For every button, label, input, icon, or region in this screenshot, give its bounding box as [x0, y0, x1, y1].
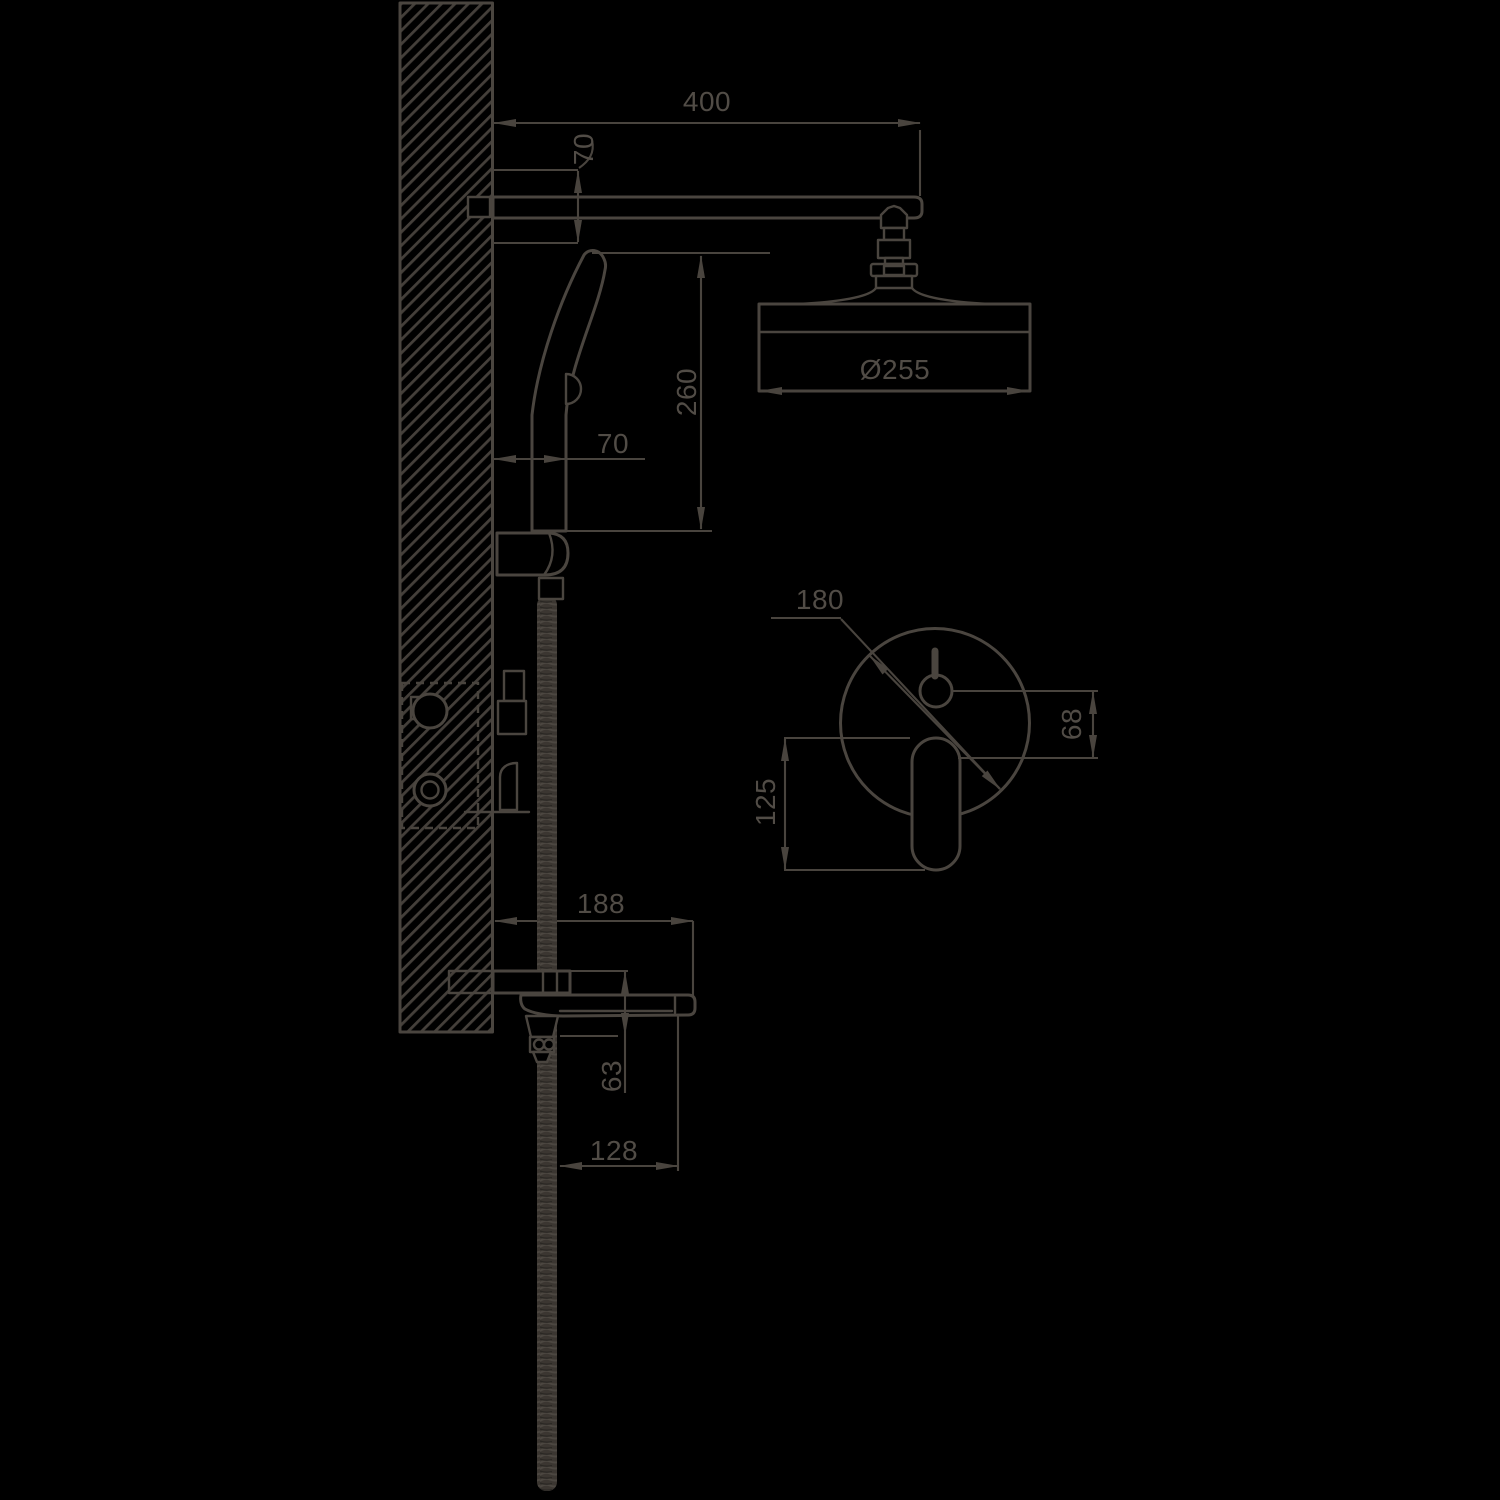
shower-installation-drawing: 400 70 70 260 Ø255 180 68 125 188 63 128	[0, 0, 1500, 1500]
hose-nut	[539, 578, 563, 599]
lower-inlet-port	[414, 774, 446, 806]
hand-shower-height-label: 260	[671, 368, 702, 416]
valve-stub-lower	[498, 701, 526, 734]
spout-drop-label: 63	[596, 1060, 627, 1092]
dim-lever-length	[784, 738, 925, 870]
mixer-lever	[912, 738, 960, 870]
plate-diameter-label: 180	[796, 584, 844, 615]
spout-projection-label: 188	[577, 888, 625, 919]
diverter-knob	[920, 675, 952, 707]
head-top-flare	[760, 288, 1029, 304]
head-diameter-label: Ø255	[860, 354, 931, 385]
technical-drawing-page: 400 70 70 260 Ø255 180 68 125 188 63 128	[0, 0, 1500, 1500]
head-flange-lower	[876, 276, 912, 288]
arm-drop-label: 70	[568, 133, 599, 165]
hose-reach-label: 128	[590, 1135, 638, 1166]
spout-body	[521, 995, 695, 1016]
wall-section	[400, 3, 493, 1032]
spout-outlet-taper	[526, 1016, 558, 1037]
wall-holder	[497, 533, 568, 575]
shower-arm	[493, 197, 922, 218]
outlet-hose-coupler	[533, 1052, 551, 1062]
handle-hook-detail	[566, 374, 581, 404]
arm-length-label: 400	[683, 86, 731, 117]
wall-hatch	[401, 4, 492, 1032]
ball-joint-neck	[884, 228, 904, 240]
spout-mounting-plate	[493, 971, 570, 993]
lever-length-label: 125	[750, 778, 781, 826]
arm-wall-union	[468, 197, 490, 217]
hand-shower	[497, 250, 606, 599]
upper-inlet-port	[413, 694, 447, 728]
ball-joint-nut	[878, 240, 910, 258]
mixer-front-view	[771, 618, 1030, 870]
hand-shower-offset-label: 70	[597, 428, 629, 459]
valve-clamp	[500, 763, 517, 810]
valve-stub-upper	[504, 671, 524, 701]
knob-lever-gap-label: 68	[1056, 708, 1087, 740]
dim-arm-length	[494, 123, 920, 196]
